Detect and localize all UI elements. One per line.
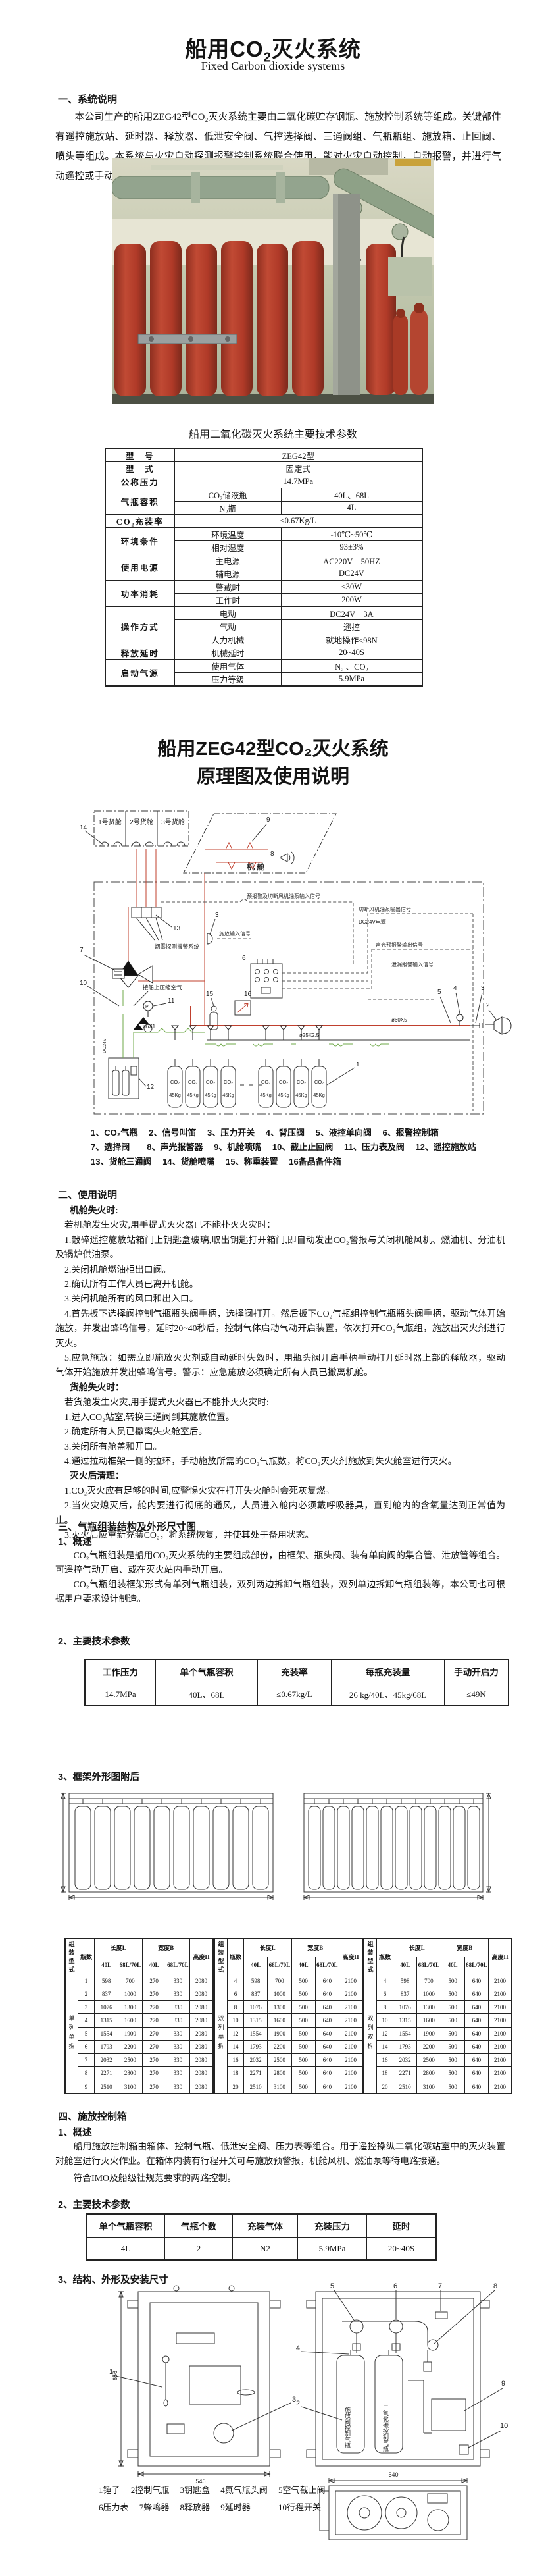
section3-sub1: 1、概述 [58,1535,92,1548]
svg-text:45Kg: 45Kg [313,1092,325,1098]
rack-dimensions-table: 组装型式瓶数长度L宽度B高度H40L68L/70L40L68L/70L双列双拆4… [363,1938,512,2094]
single-row-rack [61,1793,273,1900]
sig-prealarm-label: 预报警及切断风机油泵输入信号 [247,893,320,899]
dc24v-label: DC24V [103,1038,107,1053]
section4-sub2: 2、主要技术参数 [58,2197,130,2211]
section3-para1: CO₂气瓶组装是船用CO₂灭火系统的主要组成部份，由框架、瓶头阀、装有单向阀的集… [55,1548,505,1577]
red-pilot-lines [128,849,205,1026]
cb-callout-6: 6 [393,2282,397,2290]
document-page: 船用CO2灭火系统 Fixed Carbon dioxide systems 一… [0,0,546,2576]
rack-dimensions-tables: 组装型式瓶数长度L宽度B高度H40L68L/70L40L68L/70L单列单拆1… [64,1938,512,2083]
control-box-front-view [118,2286,280,2477]
schematic-title-line1: 船用ZEG42型CO₂灭火系统 [0,733,546,761]
usage-paragraph: 2.确定所有人员已撤离失火舱室后。 [55,1425,505,1439]
callout-11: 11 [168,997,175,1005]
svg-text:CO₂: CO₂ [279,1079,288,1085]
green-pilot-lines [123,990,389,1058]
svg-text:CO₂: CO₂ [297,1079,306,1085]
cb-callout-2: 2 [296,2400,300,2407]
cb-callout-1: 1 [109,2368,113,2376]
sig-cut-label: 切断风机油泵输出信号 [359,906,411,912]
usage-paragraph: 3.关闭所有舱盖和开口。 [55,1440,505,1454]
legend-line1: 1、CO₂气瓶 2、信号叫笛 3、压力开关 4、背压阀 5、液控单向阀 6、报警… [91,1126,439,1140]
svg-text:45Kg: 45Kg [222,1092,234,1098]
usage-paragraph: 5.应急施放：如需立即施放灭火剂或自动延时失效时，用瓶头阀开启手柄手动打开延时器… [55,1351,505,1380]
compressed-air-label: 接船上压缩空气 [143,984,182,991]
control-box-internal-view [307,2292,489,2466]
system-schematic-diagram: 1号货舱 2号货舱 3号货舱 14 9 8 机 舱 13 [49,808,520,1118]
usage-paragraph: 机舱失火时: [55,1203,505,1218]
callout-4: 4 [453,985,457,992]
rack-dimensions-table: 组装型式瓶数长度L宽度B高度H40L68L/70L40L68L/70L单列单拆1… [64,1938,214,2094]
cb-callout-4: 4 [296,2344,300,2352]
sig-av-label: 声光预报警输出信号 [376,941,423,948]
callout-5: 5 [437,989,441,996]
svg-text:45Kg: 45Kg [187,1092,199,1098]
usage-paragraph: 2.确认所有工作人员已离开机舱。 [55,1277,505,1292]
section1-heading: 一、系统说明 [58,92,117,106]
cargo1-label: 1号货舱 [98,818,122,826]
section4-heading: 四、施放控制箱 [58,2109,127,2123]
double-row-rack [304,1793,491,1900]
spare-parts-box [235,1001,251,1015]
control-box-params-table: 单个气瓶容积气瓶个数充装气体充装压力延时 4L2N25.9MPa20~40S [86,2213,437,2261]
section4-sub1: 1、概述 [58,2125,92,2139]
control-box-top-view [320,2478,467,2540]
usage-paragraph: 4.通过拉动框架一侧的拉环，手动施放所需的CO₂气瓶数，将CO₂灭火剂施放到失火… [55,1454,505,1469]
callout-14: 14 [80,824,87,831]
cylinder-labels: CO₂45Kg CO₂45Kg CO₂45Kg CO₂45Kg CO₂45Kg … [169,1079,325,1098]
control-cyl1-label: 施放阀控制气瓶 [344,2406,351,2449]
section4-para2: 符合IMO及船级社规范要求的两路控制。 [55,2171,505,2186]
rack-outline-drawings [46,1784,500,1912]
svg-text:CO₂: CO₂ [206,1079,215,1085]
cb-callout-7: 7 [438,2282,442,2290]
co2-room-boundary [94,882,484,1114]
cb-callout-9: 9 [501,2380,505,2388]
usage-paragraph: 货舱失火时： [55,1380,505,1395]
cb-callout-5: 5 [330,2282,334,2290]
callout-6: 6 [242,955,246,962]
usage-paragraph: 若机舱发生火灾,用手提式灭火器已不能扑灭火灾时： [55,1218,505,1232]
callout-15: 15 [206,991,214,998]
svg-text:45Kg: 45Kg [278,1092,289,1098]
pipe-mid-label: ø25X2.5 [299,1032,320,1038]
usage-paragraph: 若货舱发生火灾,用手提式灭火器已不能扑灭火灾时: [55,1395,505,1409]
smoke-system-label: 烟雾探测报警系统 [155,943,200,950]
cb-callout-8: 8 [493,2282,497,2290]
svg-text:CO₂: CO₂ [170,1079,180,1085]
sig-dc-label: DC24V电源 [359,918,386,925]
callout-7: 7 [80,947,84,954]
cylinder-params-table: 工作压力单个气瓶容积充装率每瓶充装量手动开启力 14.7MPa40L、68L≤0… [84,1659,509,1706]
pipe-small-label: ø6X1 [143,1024,156,1030]
usage-paragraph: 4.首先扳下选择阀控制气瓶瓶头阀手柄，选择阀打开。然后扳下CO₂气瓶组控制气瓶瓶… [55,1307,505,1351]
controlbox-footnote-line2: 6压力表 7蜂鸣器 8释放器 9延时器 10行程开关 [99,2500,321,2513]
remote-release-station [109,1058,139,1099]
rack-dimensions-table: 组装型式瓶数长度L宽度B高度H40L68L/70L40L68L/70L双列单拆4… [214,1938,363,2094]
table1-caption: 船用二氧化碳灭火系统主要技术参数 [0,425,546,441]
legend-line2: 7、选择阀 8、声光报警器 9、机舱喷嘴 10、截止止回阀 11、压力表及阀 1… [91,1140,476,1155]
main-params-tbody: 型 号ZEG42型型 式固定式公称压力14.7MPa气瓶容积CO₂储液瓶40L、… [105,448,422,686]
svg-text:CO₂: CO₂ [261,1079,270,1085]
co2-station-photo [112,158,434,404]
section3-sub2: 2、主要技术参数 [58,1634,130,1648]
engine-room-label: 机 舱 [247,862,265,872]
callout-9: 9 [266,816,270,824]
svg-text:45Kg: 45Kg [205,1092,216,1098]
sig-leak-label: 泄漏报警输入信号 [391,961,434,968]
cargo2-label: 2号货舱 [130,818,153,826]
section3-para2: CO₂气瓶组装框架形式有单列气瓶组装，双列两边拆卸气瓶组装，双列单边拆卸气瓶组装… [55,1577,505,1606]
schematic-title-line2: 原理图及使用说明 [0,761,546,789]
callout-8: 8 [270,851,274,858]
svg-text:P: P [145,1005,149,1009]
sig-release-label: 施放输入信号 [219,930,251,937]
page-subtitle: Fixed Carbon dioxide systems [0,59,546,73]
usage-text: 机舱失火时:若机舱发生火灾,用手提式灭火器已不能扑灭火灾时：1.敲碎遥控施放站箱… [55,1203,505,1542]
usage-paragraph: 3.关闭机舱所有的风口和出入口。 [55,1292,505,1306]
usage-paragraph: 灭火后清理： [55,1469,505,1483]
section4-para1: 船用施放控制箱由箱体、控制气瓶、低泄安全阀、压力表等组合。用于遥控操纵二氧化碳站… [55,2140,505,2169]
callout-12: 12 [147,1084,155,1091]
callout-3b: 3 [481,985,485,992]
cargo-holds [94,811,189,846]
svg-text:CO₂: CO₂ [224,1079,233,1085]
usage-paragraph: 1.敲碎遥控施放站箱门上钥匙盒玻璃,取出钥匙打开箱门,即自动发出CO₂警报与关闭… [55,1233,505,1263]
usage-paragraph: 1.进入CO₂站室,转换三通阀到其施放位置。 [55,1410,505,1425]
main-params-table: 型 号ZEG42型型 式固定式公称压力14.7MPa气瓶容积CO₂储液瓶40L、… [105,448,423,687]
usage-paragraph: 1.CO₂灭火应有足够的时间,应警惕火灾在打开失火舱时会死灰复燃。 [55,1484,505,1498]
svg-text:45Kg: 45Kg [295,1092,307,1098]
svg-text:45Kg: 45Kg [169,1092,181,1098]
svg-text:45Kg: 45Kg [260,1092,272,1098]
callout-1: 1 [356,1061,360,1068]
svg-text:CO₂: CO₂ [314,1079,324,1085]
selector-valve [112,961,153,987]
pipe-main-label: ø60X5 [391,1017,407,1023]
top-width-dim: 540 [388,2471,398,2478]
callout-10: 10 [80,980,87,987]
callout-13: 13 [173,925,181,932]
main-manifold [191,1006,470,1026]
alarm-control-box [251,959,282,998]
callout-3a: 3 [215,912,219,919]
usage-paragraph: 2.关闭机舱燃油柜出口阀。 [55,1263,505,1277]
weighing-device [210,998,218,1030]
horn-icon [281,852,294,864]
section2-heading: 二、使用说明 [58,1188,117,1201]
release-bell-icon [207,933,212,944]
svg-text:CO₂: CO₂ [188,1079,197,1085]
steel-column [333,194,360,395]
legend-line3: 13、货舱三通阀 14、货舱喷嘴 15、称重装置 16备品备件箱 [91,1155,341,1169]
cb-callout-10: 10 [500,2422,508,2430]
section3-heading: 三、气瓶组装结构及外形尺寸图 [58,1519,196,1533]
callout-2: 2 [486,1002,490,1009]
controlbox-footnote-line1: 1锤子 2控制气瓶 3钥匙盒 4氮气瓶头阀 5空气截止阀 [99,2483,326,2496]
section3-sub3: 3、框架外形图附后 [58,1770,139,1783]
clamp-bracket [138,334,237,344]
cargo3-label: 3号货舱 [161,818,185,826]
control-cyl2-label: 二氧化碳控制气瓶 [382,2404,389,2452]
